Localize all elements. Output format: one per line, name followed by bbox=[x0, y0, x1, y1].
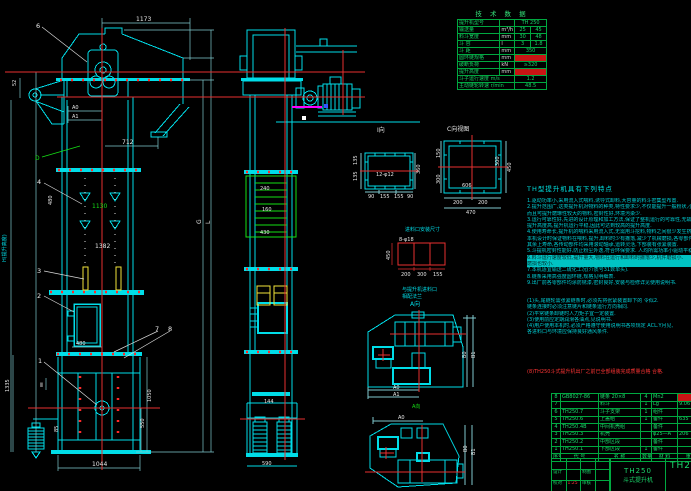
dim-t2-a0: A0 bbox=[398, 415, 405, 421]
features-text-block: TH型提升机具有下列特点 1.驱动功率小,采用流入式喂料,诱导式卸料,大容量的料… bbox=[527, 183, 691, 286]
bom-row: 4TH250.4B中间机壳组备件 bbox=[552, 424, 691, 432]
tech-data-table: 技 术 数 据 提升机型号TH 250 输送量m³/h2545 料斗宽度mm30… bbox=[457, 8, 547, 90]
bom-row: 5TH250.6上盖组1备件635 bbox=[552, 416, 691, 424]
tb-cell-check: 校对 bbox=[552, 481, 567, 491]
feature-line: 5.斗提机密封性能好,防止粉尘外逸,符合环保要求. 人均所需功率小驱动平稳噪音小… bbox=[527, 248, 691, 254]
dim-1130: 1130 bbox=[92, 203, 107, 210]
dim-t1-a0: A0 bbox=[393, 385, 400, 391]
dim-i-r: 360 bbox=[416, 164, 422, 174]
dim-85: 85 bbox=[54, 426, 60, 432]
tech-row: 圆环链规格mm bbox=[458, 55, 547, 62]
bom-row: 8GB8027-86链条 20×84Mn2 bbox=[552, 394, 691, 402]
note-red-line: (8)TH250斗式提升机出厂之前已全部组装完成质量合格 合格. bbox=[527, 368, 691, 375]
dim-c-r2: 300 bbox=[495, 156, 501, 166]
title-block-grid: 设计 制图 校对 1:25 审核 bbox=[552, 459, 611, 491]
section-mark: Ⅱ bbox=[40, 382, 43, 389]
tb-cell-design: 设计 bbox=[552, 470, 567, 481]
tech-row: 输送量m³/h2545 bbox=[458, 27, 547, 34]
balloon-4: 4 bbox=[37, 178, 41, 186]
platform-bar bbox=[56, 78, 190, 81]
boot-side bbox=[247, 403, 297, 455]
view-label-A: A向 bbox=[410, 300, 420, 308]
dim-c-b3: 470 bbox=[466, 210, 476, 216]
dim-r-b3: 155 bbox=[433, 272, 443, 278]
title-block: 设计 制图 校对 1:25 审核 TH250 斗式提升机 TH2 bbox=[551, 458, 691, 491]
drawing-number: TH2 bbox=[666, 459, 691, 491]
tech-row: 斗 容l31.8 bbox=[458, 41, 547, 48]
casing-front bbox=[62, 97, 133, 452]
d-leader bbox=[42, 146, 80, 157]
white-grip bbox=[302, 116, 306, 120]
boot-front bbox=[58, 357, 140, 452]
drawing-title: TH250 斗式提升机 bbox=[611, 459, 666, 491]
drawing-name: 斗式提升机 bbox=[623, 475, 653, 484]
feed-opening-detail bbox=[392, 243, 445, 271]
dim-height-label: H(提升高度) bbox=[1, 234, 8, 262]
bucket-mounts bbox=[80, 193, 120, 229]
balloon-6: 6 bbox=[36, 22, 40, 30]
tech-row: 主动链轮转速 r/min48.5 bbox=[458, 83, 547, 90]
dim-i-b1: 90 bbox=[368, 194, 374, 200]
redacted-value bbox=[678, 394, 691, 402]
dim-i-b2: 155 bbox=[380, 194, 390, 200]
tech-row: 斗 距mm350 bbox=[458, 48, 547, 55]
tech-row: 提升高度mm bbox=[458, 69, 547, 76]
flange-bolt-marks bbox=[50, 80, 296, 438]
feed-detail-title: 进料口安装尺寸 bbox=[405, 226, 440, 233]
dim-i-b3: 155 bbox=[394, 194, 404, 200]
dim-i-l2: 135 bbox=[353, 171, 359, 181]
tech-row: 斗子运行速度 m/s1.2 bbox=[458, 76, 547, 83]
dim-430: 430 bbox=[260, 230, 270, 236]
bom-row: 3TH250.3机壳φ25—A206 bbox=[552, 431, 691, 439]
dim-144: 144 bbox=[264, 399, 274, 405]
dim-t1-b1: B1 bbox=[471, 351, 477, 358]
notes-text-block: (1)头,尾链轮需张紧链条时,必须先将张紧装置卸下的 令似2. 链条连接时必须注… bbox=[527, 298, 691, 336]
dim-c-r1: 450 bbox=[507, 162, 513, 172]
bolt-spec-I: 12-φ12 bbox=[376, 172, 394, 178]
dim-c-l1: 150 bbox=[436, 148, 442, 158]
note-line: 各进料口与环境应保持良好通风条件. bbox=[527, 329, 691, 335]
tech-table-title: 技 术 数 据 bbox=[457, 8, 547, 18]
label-d: D bbox=[35, 155, 40, 162]
takeup-bracket bbox=[29, 80, 64, 124]
feed-label-1: 与提升机进料口 bbox=[402, 286, 437, 293]
feature-line: 4.使用寿命长,提升机的喂料采用流入式,无需用斗挖料,物料之间很少发生挤压和碰撞… bbox=[527, 229, 691, 235]
dim-480-mid: 480 bbox=[48, 195, 54, 205]
dim-c-in: 606 bbox=[462, 183, 472, 189]
tech-row: 提升机型号TH 250 bbox=[458, 20, 547, 27]
dim-160: 160 bbox=[262, 207, 272, 213]
view-label-C: C向视图 bbox=[447, 125, 469, 133]
tb-cell-approve: 审核 bbox=[581, 481, 596, 491]
dim-c-l2: 300 bbox=[436, 174, 442, 184]
blue-grip bbox=[324, 104, 328, 108]
dim-1382: 1382 bbox=[95, 243, 110, 250]
dim-t2-b0: B1 bbox=[471, 448, 477, 455]
dim-t2-b1: B0 bbox=[463, 445, 469, 452]
head-outline bbox=[62, 28, 183, 104]
dim-712: 712 bbox=[122, 139, 134, 146]
dim-r-b1: 200 bbox=[401, 272, 411, 278]
dim-480-boot: 480 bbox=[76, 341, 86, 347]
dim-1044: 1044 bbox=[92, 461, 107, 468]
cad-canvas: 6 1173 52 A0 A1 712 D 4 480 1130 1382 3 … bbox=[0, 0, 691, 491]
bom-row: 1TH250.1下部区段1备件 bbox=[552, 446, 691, 454]
feature-line: 2.提升范围广,这类提升机对物料的种类,特性要求少,不仅能提升一般粉状,小颗粒物… bbox=[527, 204, 691, 210]
dim-1173: 1173 bbox=[136, 16, 151, 23]
redacted-value bbox=[515, 55, 547, 62]
feature-line: 9.出厂前各零部件均涂防锈漆,密封良好,安装与检修详见使用说明书. bbox=[527, 280, 691, 286]
features-title: TH型提升机具有下列特点 bbox=[527, 183, 691, 193]
leader-lines bbox=[42, 27, 170, 405]
dim-r-b2: 300 bbox=[417, 272, 427, 278]
bolt-spec-feed: 8-φ18 bbox=[399, 237, 414, 243]
upper-bracket bbox=[296, 46, 357, 52]
dim-G: G bbox=[196, 219, 203, 224]
bom-row: 2TH250.2中部区段备件 bbox=[552, 439, 691, 447]
inspection-door-side bbox=[250, 303, 287, 333]
boot-top-view bbox=[370, 417, 472, 487]
dim-c-b1: 200 bbox=[453, 200, 463, 206]
tb-cell-draw: 制图 bbox=[581, 470, 596, 481]
centerlines bbox=[5, 28, 508, 482]
discharge-spout bbox=[151, 104, 189, 137]
dim-i-l1: 135 bbox=[353, 155, 359, 165]
redacted-value bbox=[515, 69, 547, 76]
tech-row: 料斗宽度mm3048 bbox=[458, 34, 547, 41]
dim-i-b4: 90 bbox=[407, 194, 413, 200]
dim-t1-a1: A1 bbox=[393, 392, 400, 398]
dim-590: 590 bbox=[262, 461, 272, 467]
balloon-1: 1 bbox=[38, 357, 42, 365]
balloon-7: 7 bbox=[155, 325, 159, 333]
view-label-A2: A向 bbox=[412, 403, 420, 410]
dim-240: 240 bbox=[260, 186, 270, 192]
inspection-door-front bbox=[68, 304, 100, 346]
dim-52: 52 bbox=[12, 80, 18, 86]
balloon-3: 3 bbox=[37, 267, 41, 275]
dim-550: 550 bbox=[140, 418, 146, 428]
head-neck bbox=[67, 81, 128, 97]
detail-views bbox=[361, 141, 506, 487]
bom-table: 8GB8027-86链条 20×84Mn2 7料斗1Lg9.06 6TH250.… bbox=[551, 393, 691, 462]
tb-cell-sc: 1:25 bbox=[567, 481, 582, 491]
drawing-model: TH250 bbox=[624, 467, 652, 475]
dim-1335: 1335 bbox=[5, 379, 11, 392]
bom-row: 7料斗1Lg9.06 bbox=[552, 401, 691, 409]
balloon-2: 2 bbox=[37, 292, 41, 300]
terminal-box bbox=[330, 77, 341, 84]
view-label-I: I向 bbox=[377, 126, 385, 134]
dim-a0: A0 bbox=[72, 105, 79, 111]
tech-row: 破断负荷kN≥320 bbox=[458, 62, 547, 69]
bom-row: 6TH250.7斗子支架1组件 bbox=[552, 409, 691, 417]
feed-label-2: 相配法兰 bbox=[402, 293, 422, 300]
fan-cover bbox=[352, 89, 360, 108]
dim-t1-b0: B0 bbox=[462, 351, 468, 358]
dim-1050: 1050 bbox=[147, 389, 153, 402]
dim-r-l: 450 bbox=[386, 250, 392, 260]
flange-detail-C bbox=[441, 141, 506, 208]
dim-a1: A1 bbox=[72, 114, 79, 120]
dim-c-b2: 200 bbox=[478, 200, 488, 206]
balloon-8: 8 bbox=[168, 325, 172, 333]
